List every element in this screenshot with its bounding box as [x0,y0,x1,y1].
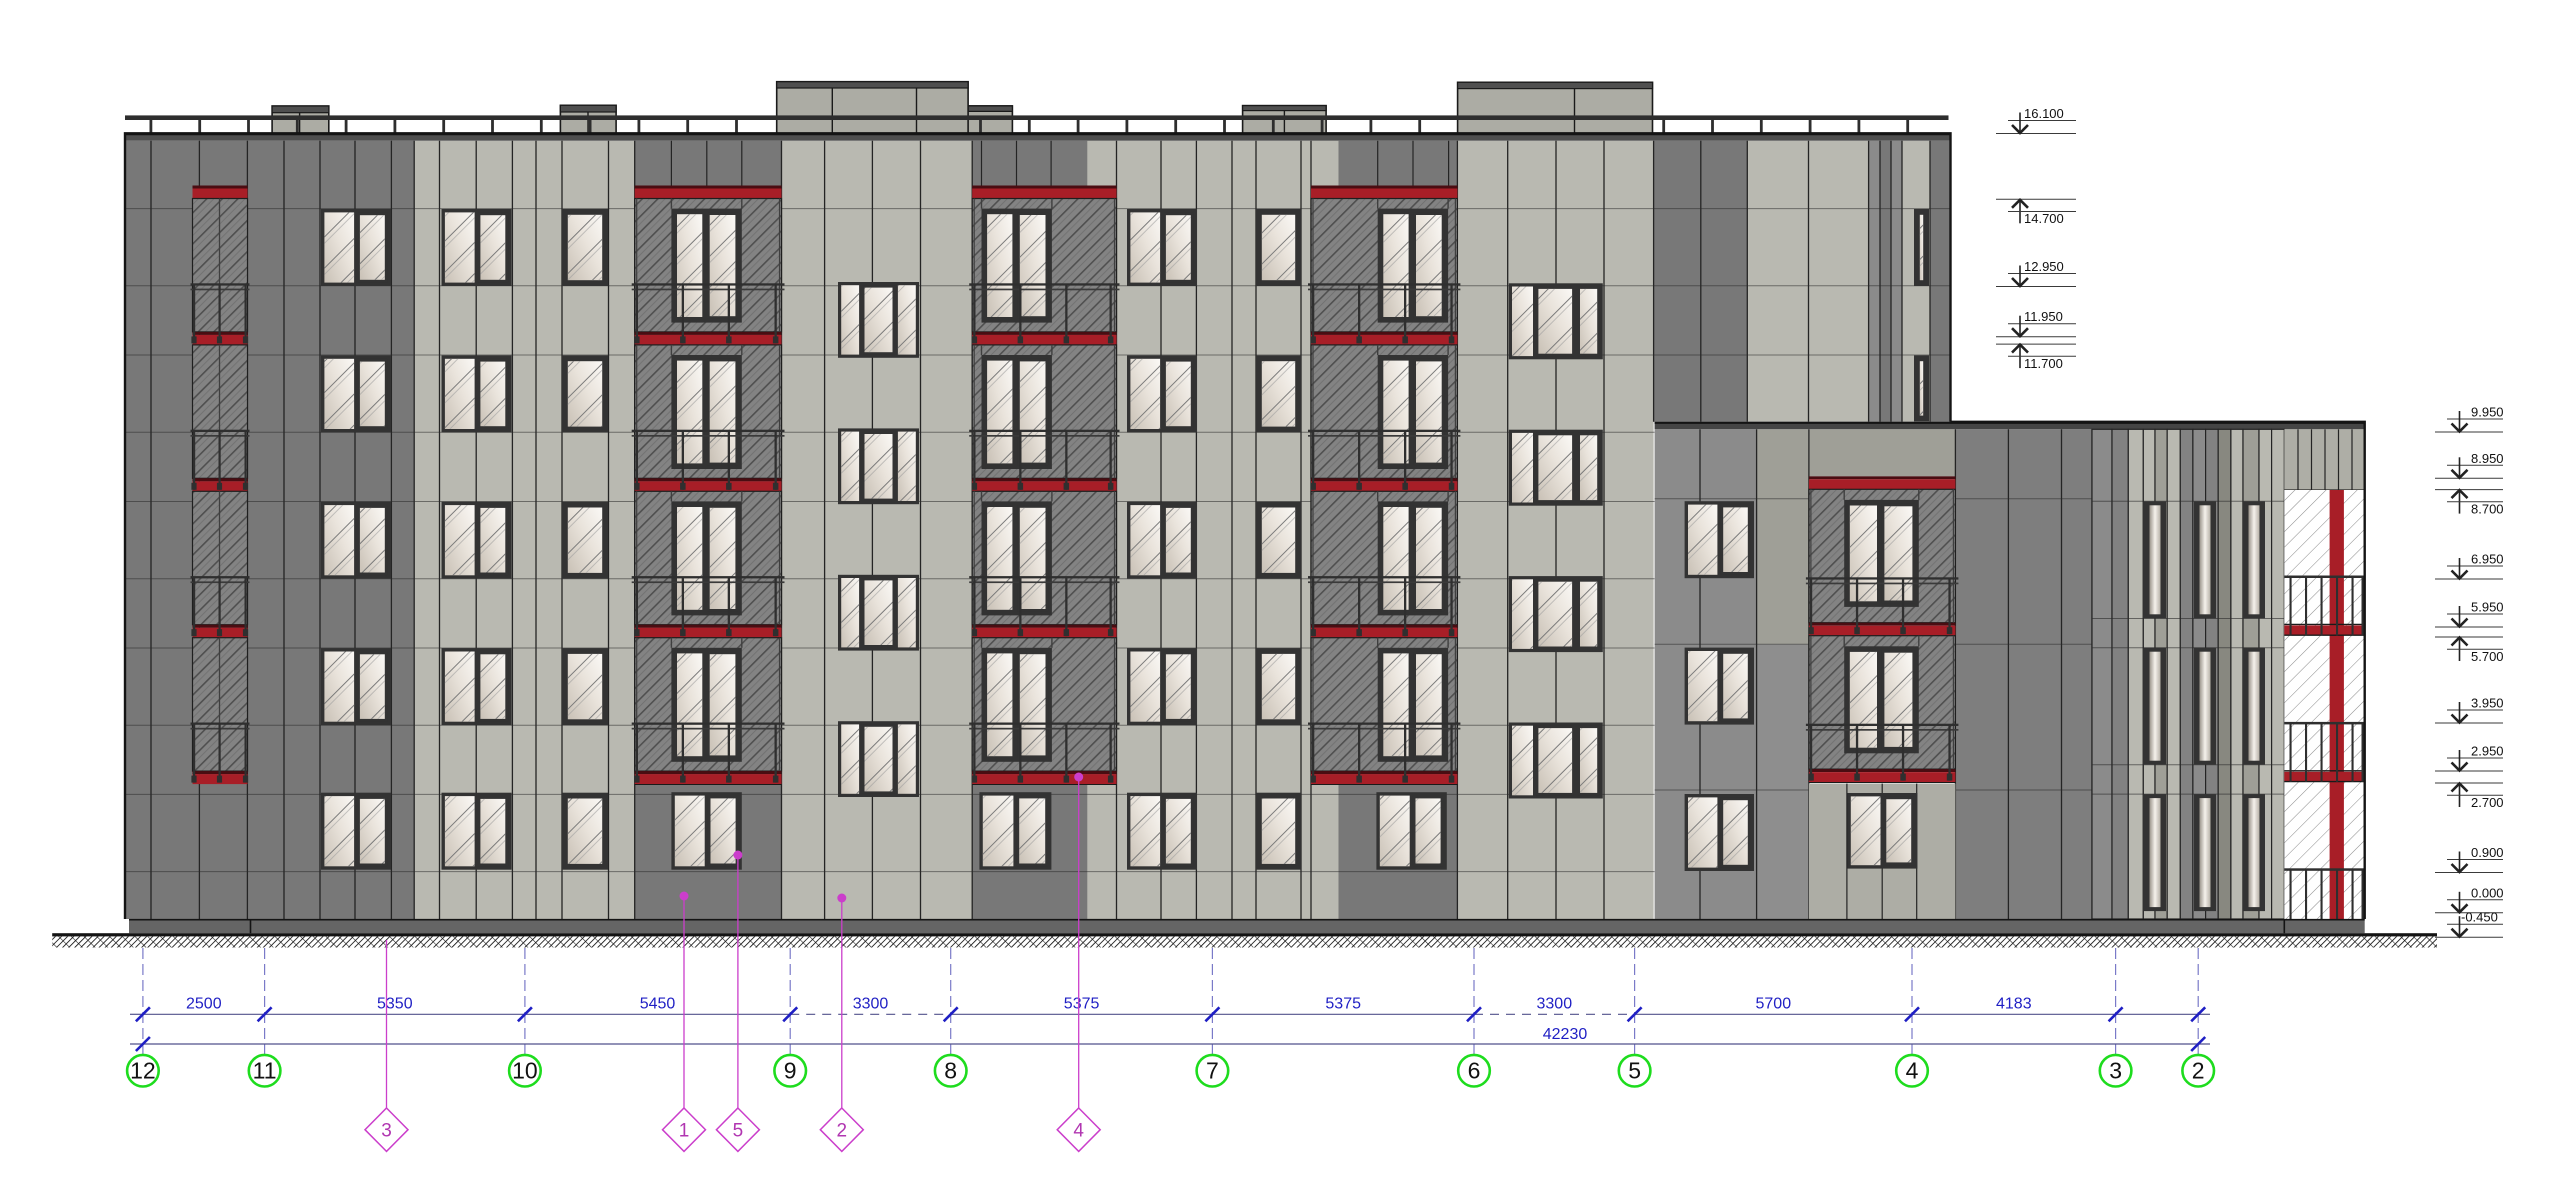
svg-text:0.000: 0.000 [2471,885,2504,900]
svg-text:6.950: 6.950 [2471,552,2504,567]
svg-text:11: 11 [253,1058,277,1084]
svg-text:2: 2 [837,1121,848,1142]
svg-text:7: 7 [1206,1058,1219,1084]
svg-text:9.950: 9.950 [2471,405,2504,420]
svg-text:4: 4 [1073,1121,1084,1142]
svg-text:8.700: 8.700 [2471,501,2504,516]
svg-text:3300: 3300 [1537,995,1573,1012]
svg-text:5: 5 [733,1121,744,1142]
svg-text:5375: 5375 [1325,995,1361,1012]
svg-text:4: 4 [1906,1058,1919,1084]
svg-text:11.700: 11.700 [2024,356,2063,371]
svg-text:1: 1 [679,1121,690,1142]
svg-text:5: 5 [1628,1058,1641,1084]
svg-text:5375: 5375 [1064,995,1100,1012]
svg-text:-0.450: -0.450 [2461,910,2498,925]
svg-text:5.700: 5.700 [2471,649,2504,664]
svg-text:5350: 5350 [377,995,413,1012]
svg-text:9: 9 [784,1058,797,1084]
svg-text:11.950: 11.950 [2024,309,2063,324]
svg-text:2.700: 2.700 [2471,795,2504,810]
svg-text:8.950: 8.950 [2471,451,2504,466]
svg-text:3: 3 [381,1121,392,1142]
svg-text:6: 6 [1468,1058,1481,1084]
svg-text:0.900: 0.900 [2471,845,2504,860]
svg-text:5.950: 5.950 [2471,600,2504,615]
svg-text:2.950: 2.950 [2471,744,2504,759]
svg-text:12.950: 12.950 [2024,259,2064,274]
svg-text:16.100: 16.100 [2024,106,2064,121]
svg-text:5450: 5450 [640,995,676,1012]
svg-text:3300: 3300 [853,995,889,1012]
svg-text:10: 10 [512,1058,538,1084]
svg-text:8: 8 [944,1058,957,1084]
svg-text:2500: 2500 [186,995,222,1012]
svg-text:42230: 42230 [1543,1026,1588,1043]
svg-text:12: 12 [130,1058,156,1084]
svg-text:3.950: 3.950 [2471,696,2504,711]
svg-text:2: 2 [2192,1058,2205,1084]
svg-text:4183: 4183 [1996,995,2032,1012]
svg-text:14.700: 14.700 [2024,211,2064,226]
svg-text:3: 3 [2109,1058,2122,1084]
svg-text:5700: 5700 [1756,995,1792,1012]
